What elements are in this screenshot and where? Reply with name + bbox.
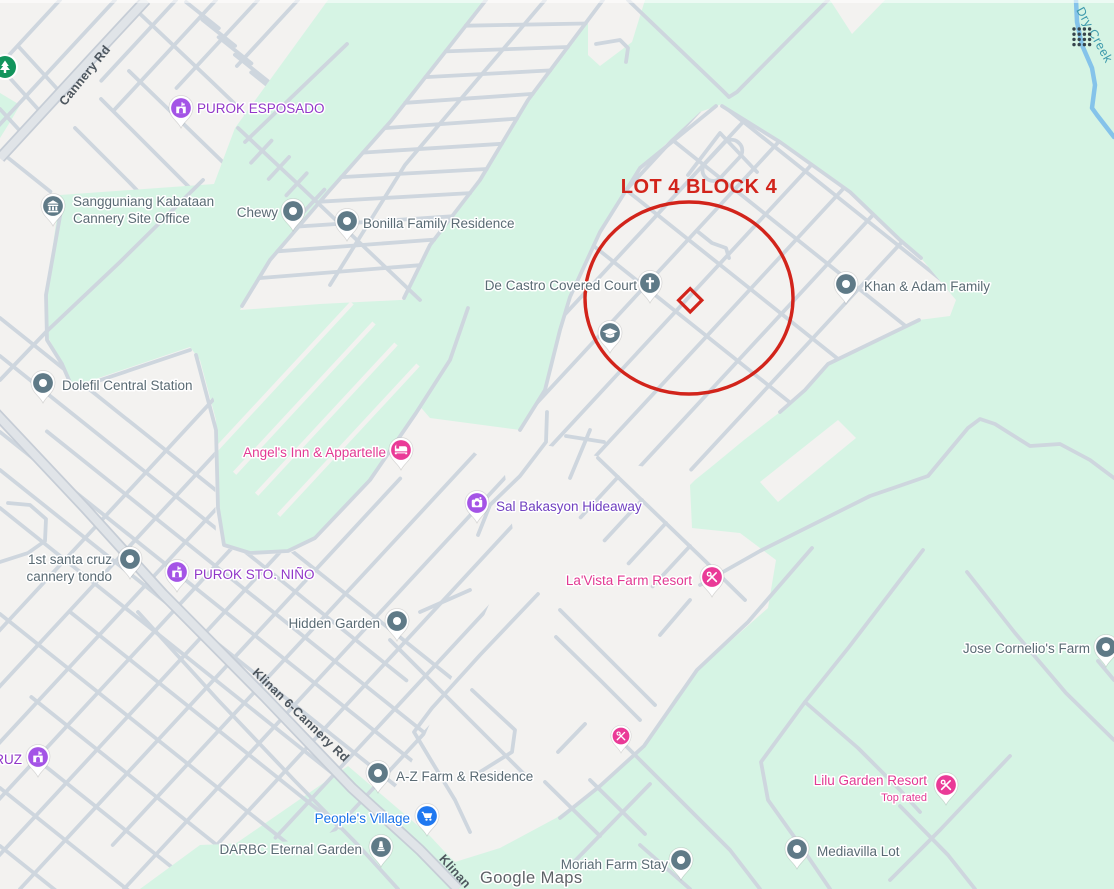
svg-text:Chewy: Chewy	[237, 205, 279, 220]
svg-text:Cannery Site Office: Cannery Site Office	[73, 211, 190, 226]
svg-text:Top rated: Top rated	[881, 792, 927, 804]
svg-text:A-Z Farm & Residence: A-Z Farm & Residence	[396, 769, 533, 784]
svg-text:Khan & Adam Family: Khan & Adam Family	[864, 279, 990, 294]
svg-text:Mediavilla Lot: Mediavilla Lot	[817, 844, 900, 859]
svg-text:De Castro Covered Court: De Castro Covered Court	[485, 278, 638, 293]
svg-text:cannery tondo: cannery tondo	[26, 569, 112, 584]
svg-text:PUROK ESPOSADO: PUROK ESPOSADO	[197, 101, 325, 116]
svg-text:Hidden Garden: Hidden Garden	[288, 616, 380, 631]
svg-text:Google Maps: Google Maps	[480, 869, 583, 887]
svg-text:People's Village: People's Village	[315, 811, 410, 826]
svg-text:LOT 4 BLOCK 4: LOT 4 BLOCK 4	[621, 176, 778, 198]
svg-text:RUZ: RUZ	[0, 752, 22, 767]
svg-text:Sangguniang Kabataan: Sangguniang Kabataan	[73, 194, 214, 209]
svg-text:Dolefil Central Station: Dolefil Central Station	[62, 378, 193, 393]
svg-text:La'Vista Farm Resort: La'Vista Farm Resort	[566, 573, 692, 588]
svg-text:1st santa cruz: 1st santa cruz	[28, 552, 112, 567]
svg-text:Angel's Inn & Appartelle: Angel's Inn & Appartelle	[243, 445, 386, 460]
svg-text:PUROK STO. NIÑO: PUROK STO. NIÑO	[194, 567, 315, 582]
svg-text:DARBC Eternal Garden: DARBC Eternal Garden	[219, 842, 362, 857]
svg-text:Jose Cornelio's Farm: Jose Cornelio's Farm	[963, 641, 1090, 656]
svg-text:Bonilla Family Residence: Bonilla Family Residence	[363, 216, 515, 231]
svg-text:Lilu Garden Resort: Lilu Garden Resort	[814, 773, 928, 788]
svg-text:Sal Bakasyon Hideaway: Sal Bakasyon Hideaway	[496, 499, 642, 514]
